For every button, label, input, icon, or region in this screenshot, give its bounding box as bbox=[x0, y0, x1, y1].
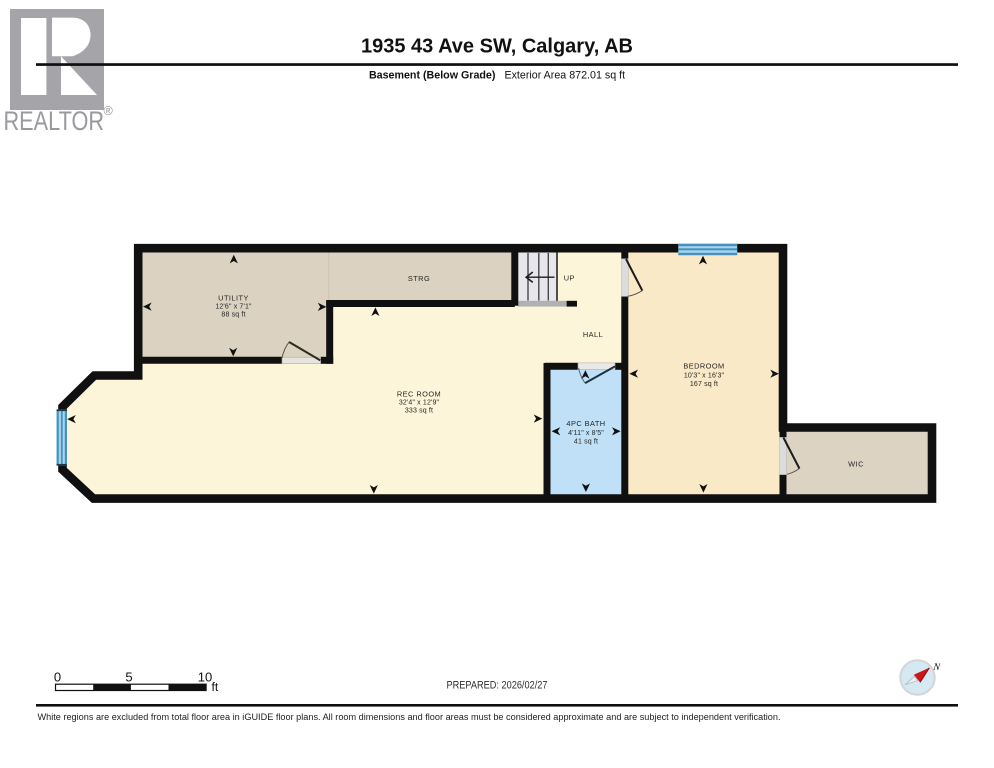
svg-text:10: 10 bbox=[198, 670, 212, 685]
svg-text:5: 5 bbox=[125, 670, 132, 685]
svg-text:®: ® bbox=[104, 104, 114, 118]
svg-text:10'3" x 16'3": 10'3" x 16'3" bbox=[684, 372, 725, 379]
svg-text:ft: ft bbox=[212, 680, 219, 694]
svg-text:STRG: STRG bbox=[408, 274, 430, 283]
svg-text:0: 0 bbox=[54, 670, 61, 685]
svg-text:1935 43 Ave SW, Calgary, AB: 1935 43 Ave SW, Calgary, AB bbox=[361, 36, 633, 58]
svg-text:167 sq ft: 167 sq ft bbox=[690, 381, 718, 388]
svg-text:PREPARED: 2026/02/27: PREPARED: 2026/02/27 bbox=[447, 680, 548, 692]
svg-text:UP: UP bbox=[564, 273, 575, 282]
svg-text:4PC BATH: 4PC BATH bbox=[566, 419, 605, 428]
svg-text:32'4" x 12'9": 32'4" x 12'9" bbox=[399, 399, 440, 406]
svg-text:REC ROOM: REC ROOM bbox=[397, 390, 441, 399]
svg-text:UTILITY: UTILITY bbox=[218, 293, 249, 302]
svg-text:BEDROOM: BEDROOM bbox=[683, 361, 724, 370]
svg-text:333 sq ft: 333 sq ft bbox=[405, 407, 433, 414]
svg-text:41 sq ft: 41 sq ft bbox=[574, 439, 598, 446]
svg-text:HALL: HALL bbox=[583, 330, 603, 339]
svg-text:12'6" x 7'1": 12'6" x 7'1" bbox=[215, 304, 252, 311]
svg-text:88 sq ft: 88 sq ft bbox=[221, 312, 245, 319]
svg-text:WIC: WIC bbox=[848, 460, 864, 469]
svg-text:White regions are excluded fro: White regions are excluded from total fl… bbox=[38, 712, 781, 723]
svg-text:4'11" x 8'5": 4'11" x 8'5" bbox=[568, 430, 604, 437]
svg-text:REALTOR: REALTOR bbox=[4, 106, 105, 136]
